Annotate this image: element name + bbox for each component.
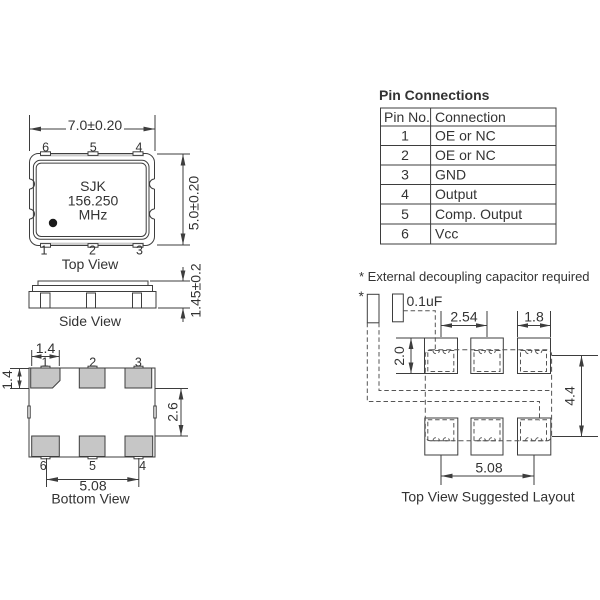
- svg-text:Top View Suggested Layout: Top View Suggested Layout: [401, 489, 574, 505]
- svg-text:4: 4: [401, 186, 409, 202]
- svg-text:GND: GND: [435, 167, 466, 183]
- svg-text:5.0±0.20: 5.0±0.20: [186, 176, 202, 231]
- svg-text:5.08: 5.08: [475, 460, 502, 476]
- svg-text:3: 3: [135, 356, 142, 370]
- svg-text:1.4: 1.4: [0, 370, 15, 390]
- svg-text:0.1uF: 0.1uF: [407, 293, 443, 309]
- svg-text:Side View: Side View: [59, 313, 122, 329]
- svg-text:5: 5: [89, 459, 96, 473]
- svg-text:Output: Output: [435, 186, 477, 202]
- svg-text:5: 5: [401, 206, 409, 222]
- svg-text:2: 2: [401, 147, 409, 163]
- svg-text:1: 1: [41, 244, 48, 258]
- svg-text:Vcc: Vcc: [435, 226, 458, 242]
- svg-text:MHz: MHz: [79, 207, 108, 223]
- svg-text:1: 1: [42, 356, 49, 370]
- svg-text:6: 6: [401, 226, 409, 242]
- svg-text:4: 4: [139, 459, 146, 473]
- svg-text:3: 3: [136, 244, 143, 258]
- svg-text:Connection: Connection: [435, 109, 506, 125]
- svg-text:Pin Connections: Pin Connections: [379, 87, 490, 103]
- svg-text:1.8: 1.8: [524, 309, 544, 325]
- svg-text:2.0: 2.0: [391, 346, 407, 366]
- svg-text:3: 3: [401, 167, 409, 183]
- svg-text:2: 2: [89, 356, 96, 370]
- svg-text:* External decoupling capacito: * External decoupling capacitor required: [359, 269, 590, 284]
- svg-text:2.54: 2.54: [450, 309, 477, 325]
- svg-text:4.4: 4.4: [562, 386, 578, 406]
- svg-text:Pin No.: Pin No.: [384, 109, 430, 125]
- svg-text:Bottom View: Bottom View: [51, 491, 130, 507]
- svg-text:Top View: Top View: [62, 256, 119, 272]
- svg-text:7.0±0.20: 7.0±0.20: [68, 117, 123, 133]
- svg-text:*: *: [359, 288, 365, 304]
- svg-text:OE or NC: OE or NC: [435, 128, 496, 144]
- svg-text:Comp. Output: Comp. Output: [435, 206, 522, 222]
- svg-text:2.6: 2.6: [165, 402, 181, 422]
- svg-text:1.4: 1.4: [36, 340, 56, 356]
- svg-text:1: 1: [401, 128, 409, 144]
- svg-text:OE or NC: OE or NC: [435, 147, 496, 163]
- svg-text:1.45±0.2: 1.45±0.2: [188, 263, 204, 318]
- svg-text:6: 6: [40, 459, 47, 473]
